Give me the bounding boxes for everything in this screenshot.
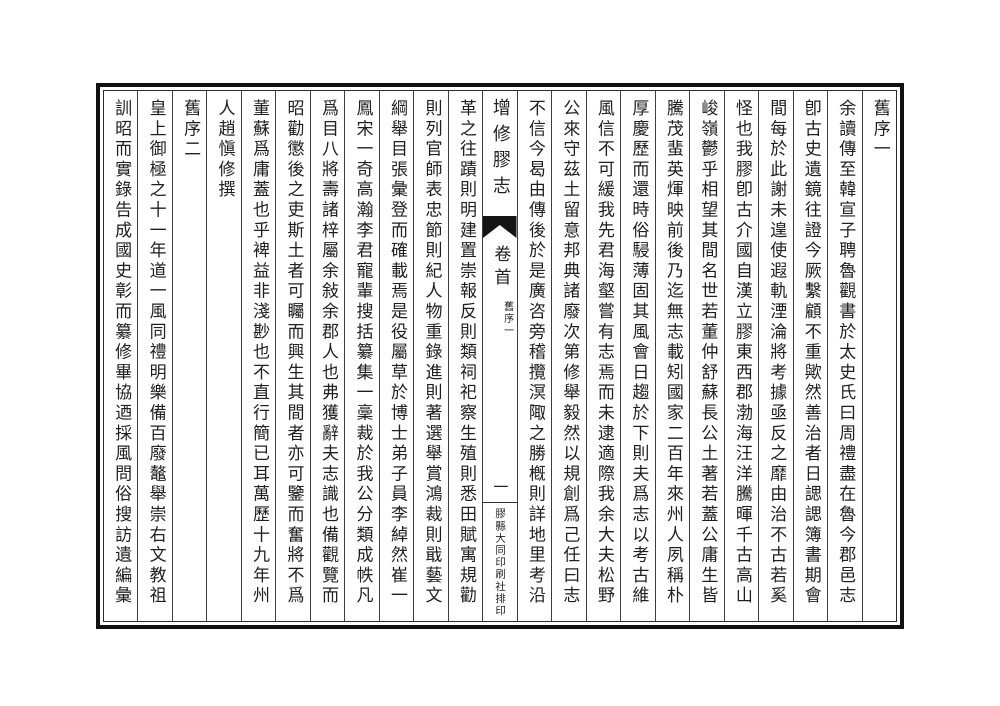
column-text: 卽古史遺鏡往證今厥繫顧不重歟然善治者日諰諰簿書期會 <box>802 91 819 607</box>
column-text: 則列官師表忠節則紀人物重錄進則著選舉賞鴻裁則戢藝文 <box>422 91 439 607</box>
page-border: 舊序一 余讀傳至韓宣子聘魯觀書於太史氏曰周禮盡在魯今郡邑志 卽古史遺鏡往證今厥繫… <box>96 83 904 629</box>
preface-2-heading-column: 舊序二 <box>172 91 206 621</box>
subsection-label: 舊序一 <box>502 301 512 337</box>
page-number: 一 <box>492 479 507 494</box>
fishtail-ornament-icon <box>483 216 516 238</box>
column-text: 革之往蹟則明建置崇報反則類祠祀察生殖則悉田賦寓規勸 <box>457 91 474 607</box>
banxin-center-column: 增修膠志 卷首 舊序一 一 膠縣大同印刷社排印 <box>482 91 516 621</box>
scanned-book-page: 舊序一 余讀傳至韓宣子聘魯觀書於太史氏曰周禮盡在魯今郡邑志 卽古史遺鏡往證今厥繫… <box>0 0 1000 706</box>
text-columns: 舊序一 余讀傳至韓宣子聘魯觀書於太史氏曰周禮盡在魯今郡邑志 卽古史遺鏡往證今厥繫… <box>104 91 896 621</box>
text-column: 公來守茲土留意邦典諸廢次第修舉毅然以規創爲己任曰志 <box>551 91 585 621</box>
text-column: 革之往蹟則明建置崇報反則類祠祀察生殖則悉田賦寓規勸 <box>448 91 482 621</box>
text-column: 風信不可緩我先君海壑嘗有志焉而未逮適際我余大夫松野 <box>586 91 620 621</box>
author-signature-column: 人趙愼修撰 <box>206 91 240 621</box>
text-column: 不信今曷由傳後於是廣咨旁稽攬溟陬之勝槪則詳地里考沿 <box>517 91 551 621</box>
column-text: 舊序二 <box>181 91 198 160</box>
column-text: 峻嶺鬱乎相望其間名世若董仲舒蘇長公土著若蓋公庸生皆 <box>698 91 715 607</box>
section-label: 卷首 <box>491 245 508 291</box>
text-column: 鳳宋一奇高瀚李君寵輩搜括纂集一稾裁於我公分類成帙凡 <box>344 91 378 621</box>
inner-border: 舊序一 余讀傳至韓宣子聘魯觀書於太史氏曰周禮盡在魯今郡邑志 卽古史遺鏡往證今厥繫… <box>103 90 897 622</box>
printer-imprint: 膠縣大同印刷社排印 <box>495 508 506 617</box>
column-text: 董蘇爲庸蓋也乎裨益非淺尠也不直行簡已耳萬歷十九年州 <box>250 91 267 607</box>
text-column: 余讀傳至韓宣子聘魯觀書於太史氏曰周禮盡在魯今郡邑志 <box>827 91 861 621</box>
text-column: 昭勸懲後之吏斯土者可矚而興生其間者亦可鑒而奮將不爲 <box>275 91 309 621</box>
column-text: 不信今曷由傳後於是廣咨旁稽攬溟陬之勝槪則詳地里考沿 <box>526 91 543 607</box>
column-text: 余讀傳至韓宣子聘魯觀書於太史氏曰周禮盡在魯今郡邑志 <box>836 91 853 607</box>
text-column: 則列官師表忠節則紀人物重錄進則著選舉賞鴻裁則戢藝文 <box>413 91 447 621</box>
column-text: 厚慶歷而還時俗駸薄固其風會日趨於下則夫爲志以考古維 <box>629 91 646 607</box>
text-column: 峻嶺鬱乎相望其間名世若董仲舒蘇長公土著若蓋公庸生皆 <box>689 91 723 621</box>
column-text: 風信不可緩我先君海壑嘗有志焉而未逮適際我余大夫松野 <box>595 91 612 607</box>
text-column: 董蘇爲庸蓋也乎裨益非淺尠也不直行簡已耳萬歷十九年州 <box>241 91 275 621</box>
column-text: 怪也我膠卽古介國自漢立膠東西郡渤海汪洋騰暉千古高山 <box>733 91 750 607</box>
text-column: 間每於此謝未遑使遐軌湮淪將考據亟反之靡由治不古若奚 <box>758 91 792 621</box>
text-column: 綱舉目張彙登而確載焉是役屬草於博士弟子員李綽然崔一 <box>379 91 413 621</box>
column-text: 舊序一 <box>871 91 888 160</box>
text-column: 厚慶歷而還時俗駸薄固其風會日趨於下則夫爲志以考古維 <box>620 91 654 621</box>
text-column: 卽古史遺鏡往證今厥繫顧不重歟然善治者日諰諰簿書期會 <box>793 91 827 621</box>
column-text: 人趙愼修撰 <box>216 91 233 201</box>
volume-title: 增修膠志 <box>491 98 509 202</box>
text-column: 爲目八將壽諸梓屬余敍余郡人也弗獲辭夫志識也備觀覽而 <box>310 91 344 621</box>
text-column: 怪也我膠卽古介國自漢立膠東西郡渤海汪洋騰暉千古高山 <box>724 91 758 621</box>
column-text: 昭勸懲後之吏斯土者可矚而興生其間者亦可鑒而奮將不爲 <box>285 91 302 607</box>
preface-1-heading-column: 舊序一 <box>862 91 896 621</box>
column-text: 爲目八將壽諸梓屬余敍余郡人也弗獲辭夫志識也備觀覽而 <box>319 91 336 607</box>
column-text: 公來守茲土留意邦典諸廢次第修舉毅然以規創爲己任曰志 <box>560 91 577 607</box>
banxin-divider <box>483 502 516 503</box>
column-text: 騰茂蜚英煇映前後乃迄無志載矧國家二百年來州人夙稱朴 <box>664 91 681 607</box>
text-column: 皇上御極之十一年道一風同禮明樂備百廢鼇舉崇右文教祖 <box>137 91 171 621</box>
text-column: 騰茂蜚英煇映前後乃迄無志載矧國家二百年來州人夙稱朴 <box>655 91 689 621</box>
column-text: 綱舉目張彙登而確載焉是役屬草於博士弟子員李綽然崔一 <box>388 91 405 607</box>
text-column: 訓昭而實錄告成國史彰而纂修畢協迺採風問俗搜訪遺編彙 <box>104 91 137 621</box>
column-text: 皇上御極之十一年道一風同禮明樂備百廢鼇舉崇右文教祖 <box>147 91 164 607</box>
column-text: 間每於此謝未遑使遐軌湮淪將考據亟反之靡由治不古若奚 <box>767 91 784 607</box>
column-text: 訓昭而實錄告成國史彰而纂修畢協迺採風問俗搜訪遺編彙 <box>112 91 129 607</box>
column-text: 鳳宋一奇高瀚李君寵輩搜括纂集一稾裁於我公分類成帙凡 <box>353 91 370 607</box>
